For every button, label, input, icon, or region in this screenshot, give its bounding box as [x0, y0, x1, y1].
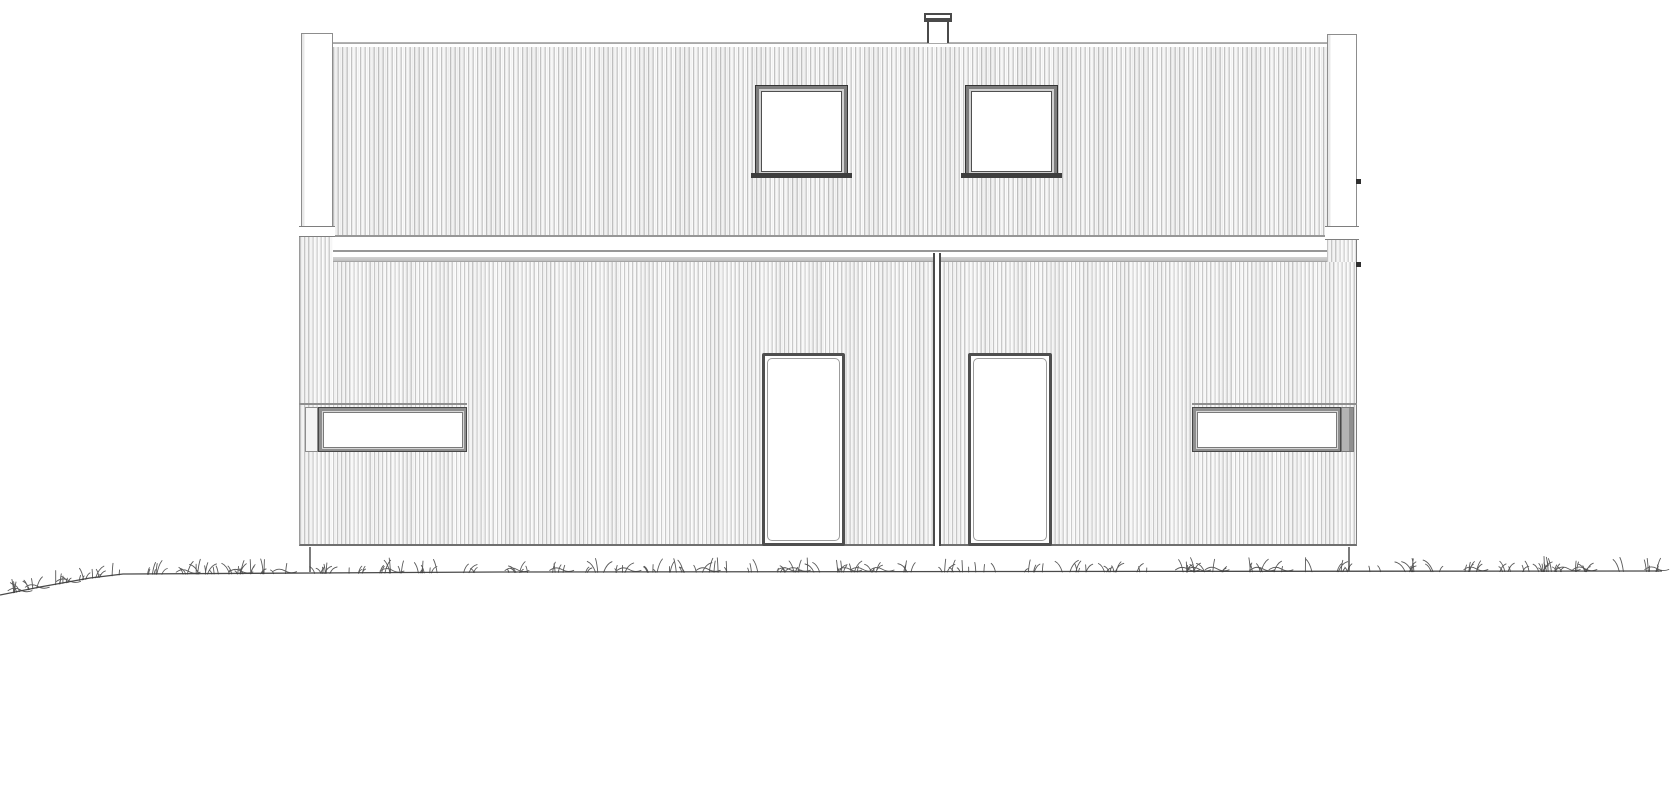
upper-window-right-sill	[961, 173, 1062, 178]
upper-window-left	[755, 85, 848, 178]
party-wall-joint	[933, 253, 941, 546]
upper-window-right-glass	[971, 91, 1052, 172]
right-post-bracket-lower	[1356, 262, 1361, 267]
strip-window-left-side-panel	[305, 407, 318, 452]
right-corner-post	[1327, 34, 1357, 240]
upper-window-left-glass	[761, 91, 842, 172]
upper-window-left-sill	[751, 173, 852, 178]
lower-wall-left-corner	[299, 237, 333, 262]
door-right	[968, 353, 1052, 546]
left-corner-post	[301, 33, 333, 237]
strip-window-left	[318, 407, 467, 452]
strip-window-right	[1192, 407, 1341, 452]
grass-tufts	[8, 557, 1669, 593]
chimney-cap	[924, 13, 952, 22]
foundation-line-left	[309, 547, 311, 572]
strip-window-right-head-trim	[1192, 403, 1357, 405]
right-corner-post-cap	[1325, 226, 1359, 240]
door-right-leaf	[973, 358, 1047, 541]
right-post-bracket-upper	[1356, 179, 1361, 184]
door-left	[762, 353, 845, 546]
door-left-leaf	[767, 358, 840, 541]
foundation-line-right	[1348, 547, 1350, 571]
lower-wall-right-corner	[1327, 240, 1357, 262]
chimney-stack	[927, 22, 949, 43]
ground-line	[0, 571, 1662, 595]
elevation-drawing	[0, 0, 1670, 800]
floor-band-upper-gap	[333, 237, 1327, 250]
upper-window-right	[965, 85, 1058, 178]
strip-window-right-glass	[1197, 412, 1337, 448]
strip-window-left-glass	[323, 412, 463, 448]
left-corner-post-cap	[299, 226, 335, 237]
strip-window-left-head-trim	[299, 403, 467, 405]
strip-window-right-side-panel	[1341, 407, 1354, 452]
roof-fascia-line	[333, 42, 1327, 44]
